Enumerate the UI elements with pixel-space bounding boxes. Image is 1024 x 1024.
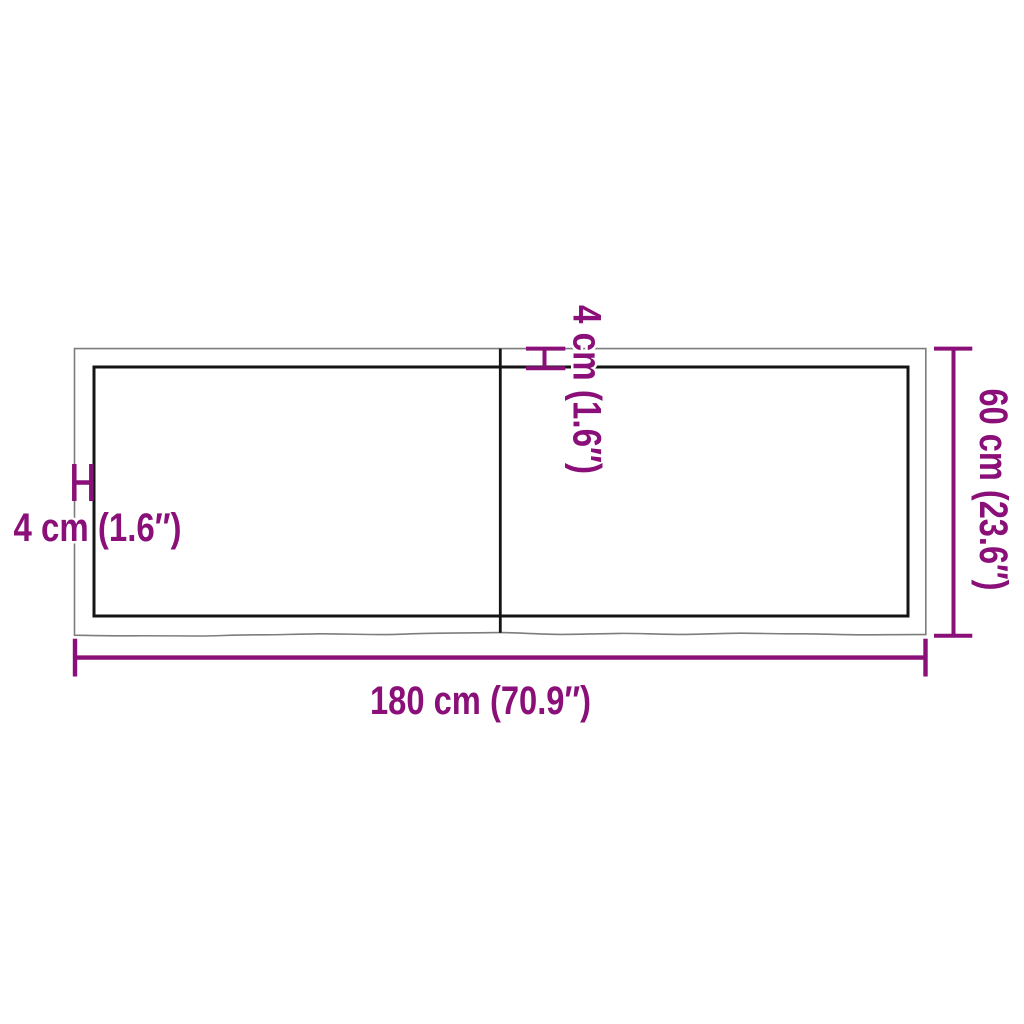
svg-text:4 cm (1.6″): 4 cm (1.6″) — [565, 305, 609, 474]
svg-text:60 cm (23.6″): 60 cm (23.6″) — [971, 389, 1015, 591]
svg-text:4 cm (1.6″): 4 cm (1.6″) — [14, 506, 182, 550]
svg-text:180 cm (70.9″): 180 cm (70.9″) — [370, 679, 591, 723]
